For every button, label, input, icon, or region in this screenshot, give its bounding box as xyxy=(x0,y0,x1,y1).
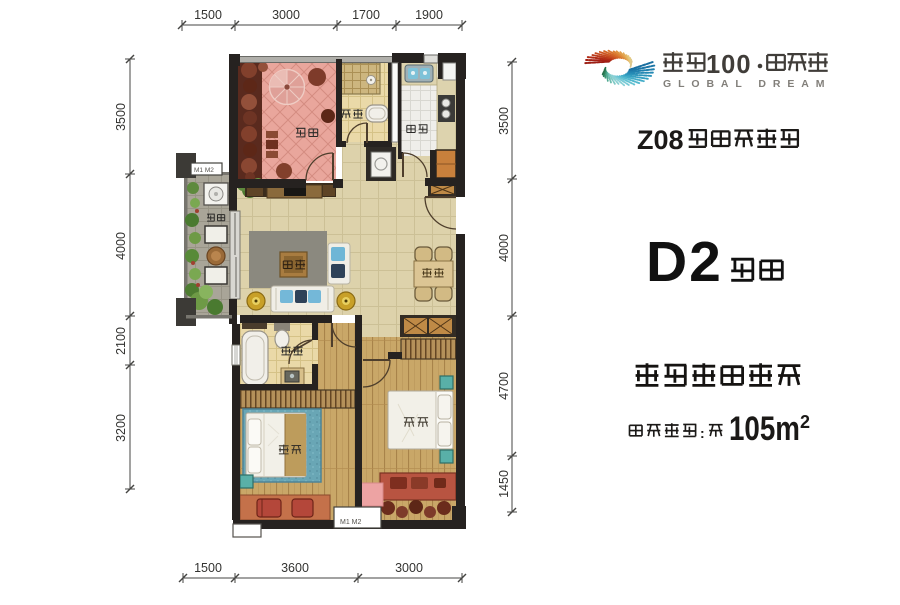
svg-text:2: 2 xyxy=(800,412,810,432)
svg-text:105m: 105m xyxy=(729,410,800,448)
svg-text:GLOBAL DREAM: GLOBAL DREAM xyxy=(663,78,831,90)
svg-text:100: 100 xyxy=(706,51,752,79)
svg-text:3600: 3600 xyxy=(281,561,309,575)
svg-text:3000: 3000 xyxy=(272,8,300,22)
svg-text:3000: 3000 xyxy=(395,561,423,575)
svg-text:M1 M2: M1 M2 xyxy=(194,167,214,174)
svg-text:2100: 2100 xyxy=(114,327,128,355)
svg-text:3200: 3200 xyxy=(114,414,128,442)
svg-text:1900: 1900 xyxy=(415,8,443,22)
svg-text:4700: 4700 xyxy=(497,372,511,400)
svg-text:4000: 4000 xyxy=(114,232,128,260)
svg-text:D2: D2 xyxy=(646,230,723,294)
svg-text:M1 M2: M1 M2 xyxy=(340,519,362,526)
svg-text:1500: 1500 xyxy=(194,561,222,575)
svg-text:3500: 3500 xyxy=(497,107,511,135)
svg-text:4000: 4000 xyxy=(497,234,511,262)
svg-text:1700: 1700 xyxy=(352,8,380,22)
svg-text:1500: 1500 xyxy=(194,8,222,22)
svg-text:3500: 3500 xyxy=(114,103,128,131)
svg-text::: : xyxy=(700,425,705,441)
svg-text:Z08: Z08 xyxy=(637,125,684,155)
svg-text:1450: 1450 xyxy=(497,470,511,498)
